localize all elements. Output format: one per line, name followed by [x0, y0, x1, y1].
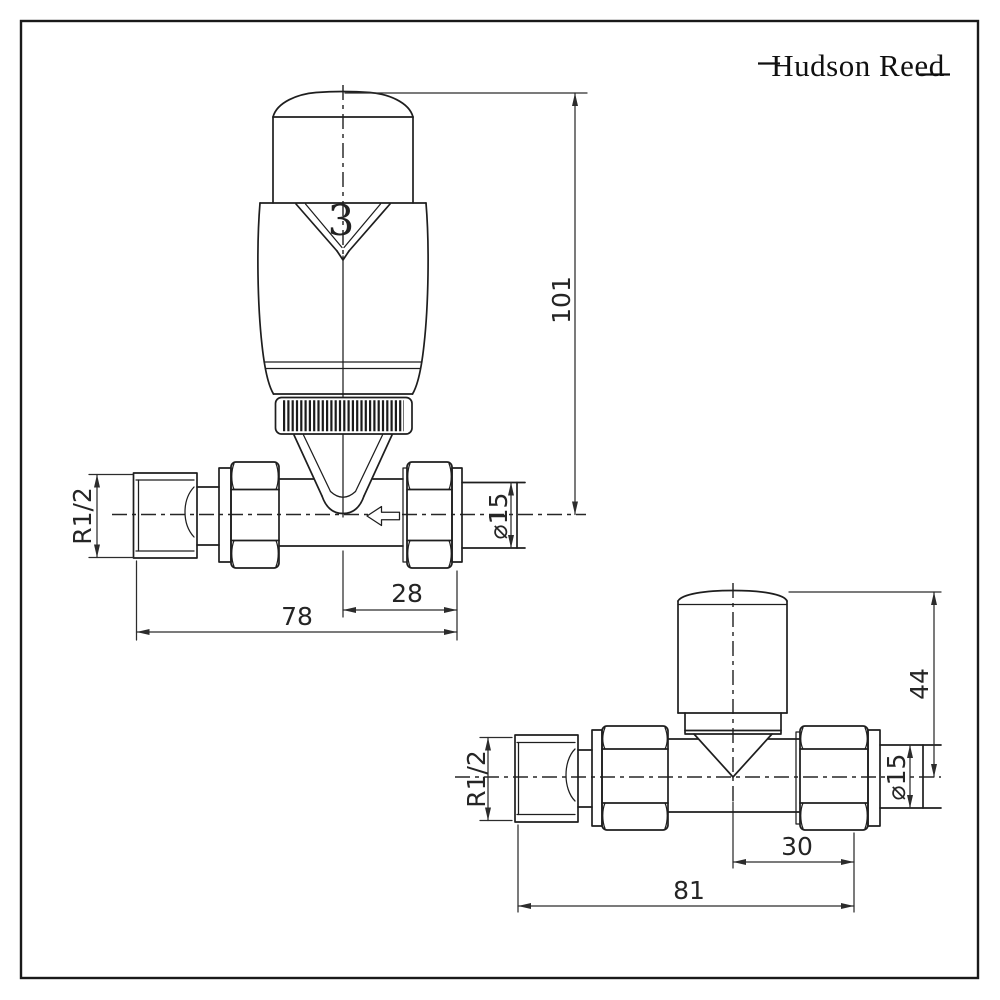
trv-dim-pipe-diameter: ⌀15	[484, 493, 513, 540]
trv-left-fitting	[134, 473, 220, 558]
manual-dim-height: 44	[905, 668, 934, 700]
brand-logo: Hudson Reed	[758, 48, 950, 83]
manual-dim-center-to-end: 30	[781, 832, 813, 861]
manual-dim-pipe-diameter: ⌀15	[882, 754, 911, 801]
drawing-sheet: Hudson Reed	[0, 0, 1000, 1000]
flow-direction-arrow-icon	[367, 507, 400, 526]
trv-dim-body-length: 78	[281, 602, 313, 631]
trv-dim-thread: R1/2	[68, 487, 97, 545]
trv-valve-drawing: 3	[68, 85, 587, 640]
trv-dim-center-to-end: 28	[391, 579, 423, 608]
manual-dimensions: 44 ⌀15 R1/2 30 81	[462, 592, 941, 912]
manual-right-union-nut	[796, 726, 880, 830]
manual-body	[515, 726, 941, 830]
manual-valve-drawing: 44 ⌀15 R1/2 30 81	[455, 583, 941, 912]
trv-knurled-ring	[276, 398, 413, 435]
manual-dim-thread: R1/2	[462, 750, 491, 808]
manual-left-fitting	[515, 735, 592, 822]
manual-left-union-nut	[592, 726, 668, 830]
trv-setting-number: 3	[328, 196, 355, 245]
trv-dim-overall-height: 101	[547, 276, 576, 324]
brand-logo-text: Hudson Reed	[771, 48, 944, 83]
manual-dim-body-length: 81	[673, 876, 705, 905]
